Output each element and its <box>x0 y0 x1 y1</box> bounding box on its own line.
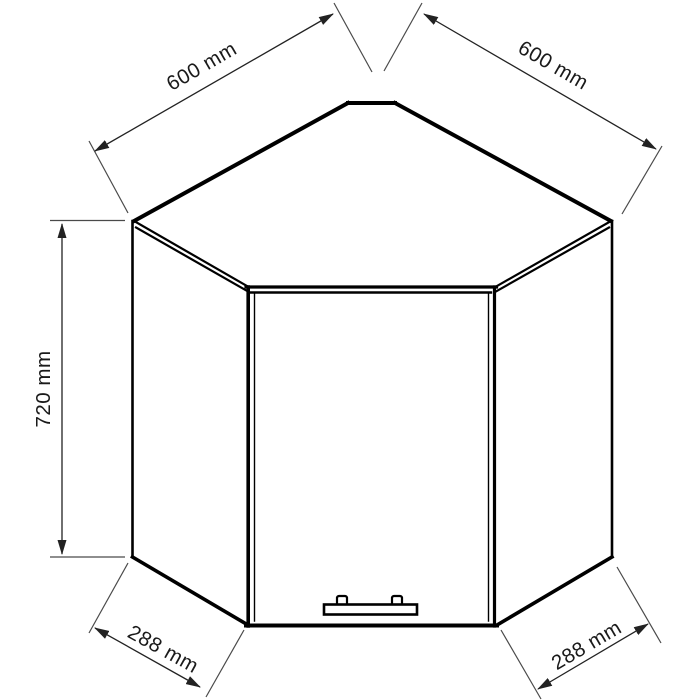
cabinet-top-front-left-edge-outer <box>134 221 247 286</box>
ext-line-bottom-right-near <box>501 630 541 699</box>
door-handle <box>324 596 417 615</box>
ext-line-bottom-left-far <box>206 630 244 697</box>
dim-label-bottom-left-288: 288 mm <box>124 621 203 678</box>
cabinet-top-back-right-edge <box>395 103 611 221</box>
dimension-lines <box>62 14 656 689</box>
ext-line-bottom-right-far <box>617 567 661 643</box>
ext-line-top-left-near <box>89 141 128 213</box>
dim-label-top-left-600: 600 mm <box>163 37 241 95</box>
corner-cabinet-dimension-drawing: 600 mm 600 mm 720 mm 288 mm 288 mm <box>0 0 700 700</box>
dimension-labels: 600 mm 600 mm 720 mm 288 mm 288 mm <box>32 36 626 678</box>
dim-label-top-right-600: 600 mm <box>514 36 592 94</box>
ext-line-top-left-far <box>334 3 372 72</box>
cabinet-top-back-left-edge <box>134 103 348 221</box>
cabinet-top-front-left-edge-inner <box>136 228 249 293</box>
ext-line-top-right-far <box>622 146 662 214</box>
cabinet-top-front-right-edge-inner <box>495 228 609 293</box>
cabinet-left-bottom-edge <box>133 557 249 625</box>
cabinet-right-bottom-edge <box>497 557 612 625</box>
ext-line-bottom-left-near <box>89 563 128 633</box>
dim-line-top-right-600 <box>424 14 656 149</box>
extension-lines <box>50 3 662 699</box>
dim-label-bottom-right-288: 288 mm <box>548 616 626 675</box>
door-handle-bar <box>324 605 417 615</box>
ext-line-top-right-near <box>384 3 422 71</box>
diagram-canvas: 600 mm 600 mm 720 mm 288 mm 288 mm <box>0 0 700 700</box>
cabinet-top-front-right-edge-outer <box>497 221 611 286</box>
cabinet-body <box>133 103 613 626</box>
dim-label-height-720: 720 mm <box>32 350 55 427</box>
